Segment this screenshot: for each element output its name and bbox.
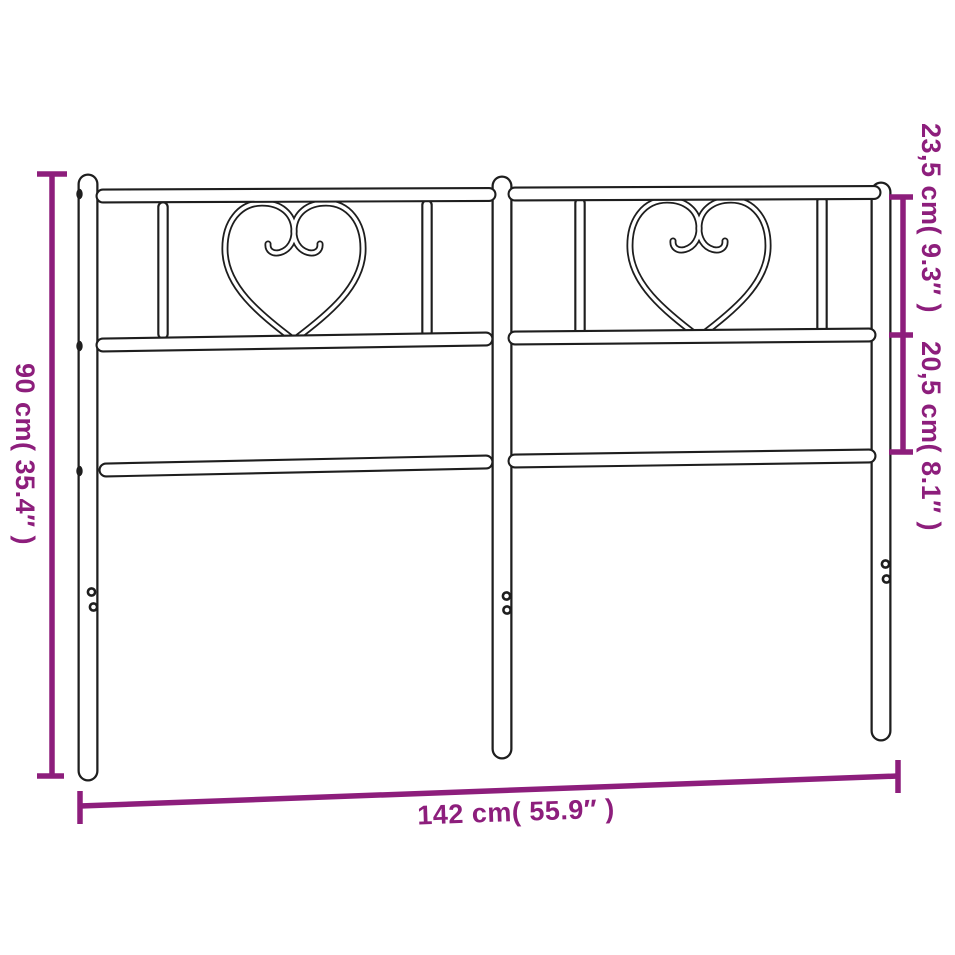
headboard-drawing <box>76 184 890 771</box>
width-dimension-label: 142 cm( 55.9″ ) <box>417 794 615 831</box>
height-dimension-label: 90 cm( 35.4″ ) <box>10 363 40 545</box>
top-section-dimension <box>889 197 913 335</box>
diagram-canvas: 90 cm( 35.4″ ) 23,5 cm( 9.3″ ) 20,5 cm( … <box>0 0 955 955</box>
middle-section-dimension-label: 20,5 cm( 8.1″ ) <box>916 341 946 531</box>
top-rail <box>103 193 874 197</box>
middle-rail <box>103 335 869 345</box>
mounting-holes <box>88 560 890 613</box>
bottom-rail <box>106 456 869 470</box>
top-section-dimension-label: 23,5 cm( 9.3″ ) <box>916 123 946 313</box>
middle-section-dimension <box>889 335 913 452</box>
height-dimension <box>37 174 67 776</box>
headboard-dimension-diagram: 90 cm( 35.4″ ) 23,5 cm( 9.3″ ) 20,5 cm( … <box>0 0 955 955</box>
